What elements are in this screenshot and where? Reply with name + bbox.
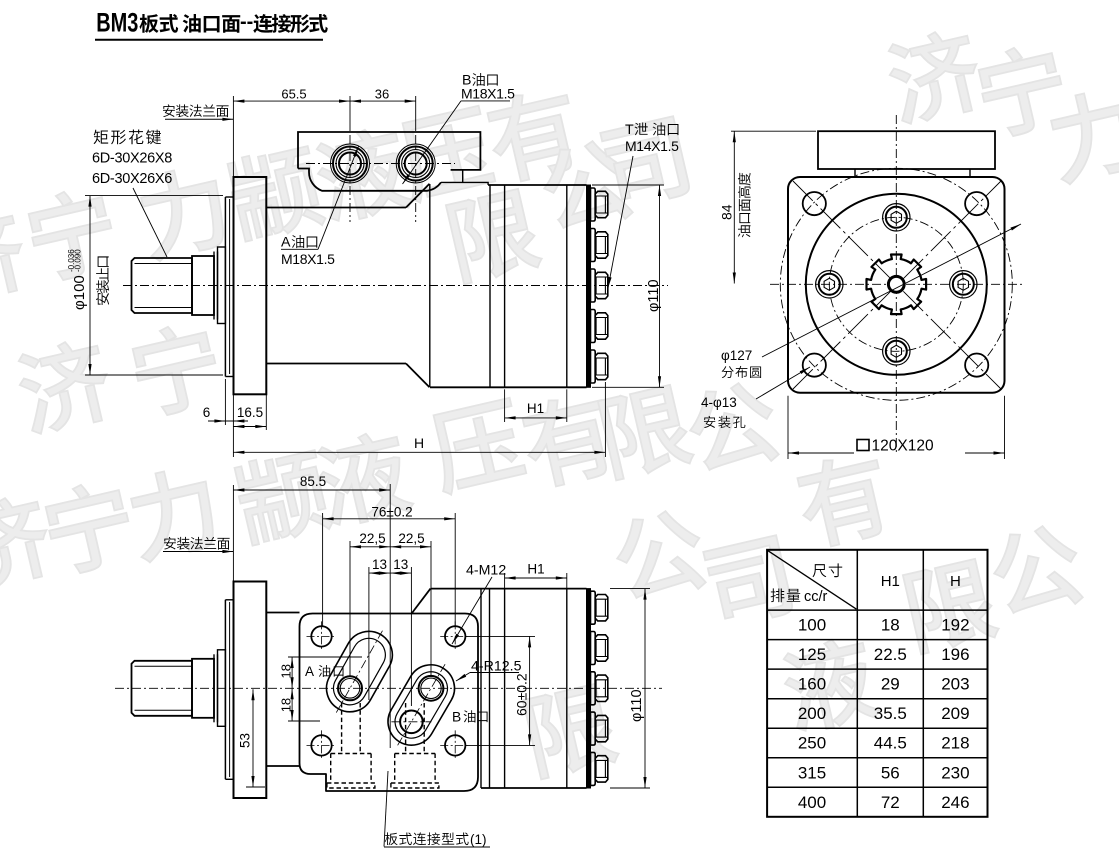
svg-text:φ100: φ100 bbox=[71, 275, 88, 310]
svg-text:60±0.2: 60±0.2 bbox=[514, 673, 530, 716]
svg-text:72: 72 bbox=[881, 793, 900, 812]
svg-text:φ110: φ110 bbox=[646, 279, 662, 312]
svg-text:6D-30X26X8: 6D-30X26X8 bbox=[92, 151, 172, 167]
svg-text:4-φ13: 4-φ13 bbox=[701, 395, 737, 410]
svg-text:200: 200 bbox=[798, 704, 826, 723]
svg-text:H1: H1 bbox=[881, 573, 900, 590]
svg-text:36: 36 bbox=[375, 87, 389, 102]
svg-text:--: -- bbox=[240, 11, 253, 33]
svg-text:100: 100 bbox=[798, 616, 826, 635]
svg-text:6D-30X26X6: 6D-30X26X6 bbox=[92, 171, 172, 187]
svg-text:A: A bbox=[281, 235, 291, 251]
svg-text:(1): (1) bbox=[470, 832, 487, 847]
svg-text:250: 250 bbox=[798, 734, 826, 753]
svg-text:13: 13 bbox=[372, 557, 387, 572]
svg-text:84: 84 bbox=[719, 204, 735, 220]
svg-text:16.5: 16.5 bbox=[237, 405, 263, 420]
svg-text:22.5: 22.5 bbox=[874, 645, 907, 664]
svg-text:18: 18 bbox=[881, 616, 900, 635]
svg-text:209: 209 bbox=[941, 704, 969, 723]
svg-text:H1: H1 bbox=[527, 401, 544, 416]
svg-text:125: 125 bbox=[798, 645, 826, 664]
svg-text:φ110: φ110 bbox=[629, 689, 645, 722]
svg-text:192: 192 bbox=[941, 616, 969, 635]
svg-text:18: 18 bbox=[279, 698, 294, 712]
svg-text:M14X1.5: M14X1.5 bbox=[625, 138, 679, 154]
svg-text:65.5: 65.5 bbox=[281, 87, 306, 102]
svg-text:-0.090: -0.090 bbox=[74, 249, 83, 272]
svg-text:H1: H1 bbox=[527, 562, 544, 577]
svg-text:400: 400 bbox=[798, 793, 826, 812]
svg-text:A: A bbox=[305, 664, 314, 679]
svg-text:160: 160 bbox=[798, 675, 826, 694]
svg-text:230: 230 bbox=[941, 763, 969, 782]
svg-text:22,5: 22,5 bbox=[359, 531, 385, 546]
svg-text:φ127: φ127 bbox=[721, 348, 752, 363]
svg-text:196: 196 bbox=[941, 645, 969, 664]
svg-text:13: 13 bbox=[393, 557, 408, 572]
svg-text:35.5: 35.5 bbox=[874, 704, 907, 723]
svg-text:B: B bbox=[452, 710, 461, 725]
svg-text:H: H bbox=[414, 435, 424, 451]
svg-text:cc/r: cc/r bbox=[804, 589, 828, 605]
svg-text:M18X1.5: M18X1.5 bbox=[461, 86, 515, 102]
svg-text:6: 6 bbox=[203, 405, 211, 420]
svg-text:218: 218 bbox=[941, 734, 969, 753]
svg-text:44.5: 44.5 bbox=[874, 734, 907, 753]
svg-text:76±0.2: 76±0.2 bbox=[371, 505, 412, 520]
svg-text:53: 53 bbox=[238, 733, 253, 748]
svg-text:56: 56 bbox=[881, 763, 900, 782]
svg-text:120X120: 120X120 bbox=[872, 438, 934, 455]
svg-text:T: T bbox=[625, 122, 634, 138]
svg-text:18: 18 bbox=[279, 664, 294, 678]
svg-text:315: 315 bbox=[798, 763, 826, 782]
svg-text:85.5: 85.5 bbox=[300, 474, 326, 489]
svg-text:4-M12: 4-M12 bbox=[466, 563, 506, 579]
svg-text:246: 246 bbox=[941, 793, 969, 812]
svg-text:203: 203 bbox=[941, 675, 969, 694]
svg-text:BM3: BM3 bbox=[96, 8, 138, 39]
svg-text:M18X1.5: M18X1.5 bbox=[281, 251, 335, 267]
svg-text:29: 29 bbox=[881, 675, 900, 694]
svg-text:H: H bbox=[950, 573, 961, 590]
svg-text:22,5: 22,5 bbox=[398, 531, 424, 546]
